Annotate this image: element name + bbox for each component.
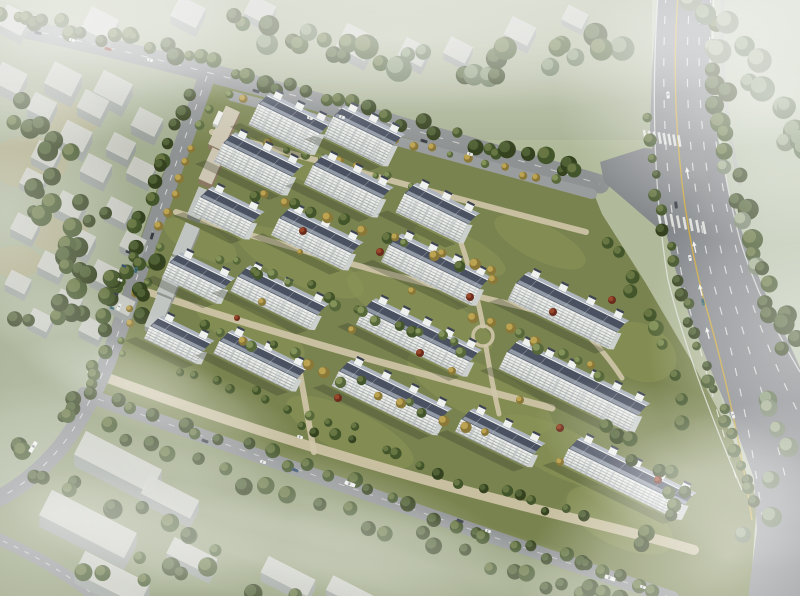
accent-tree: [376, 248, 384, 256]
accent-tree: [416, 349, 424, 357]
accent-tree: [258, 298, 266, 306]
aerial-rendering: [0, 0, 800, 596]
accent-tree: [348, 326, 356, 334]
top-haze: [0, 0, 800, 150]
accent-tree: [608, 296, 616, 304]
accent-tree: [299, 227, 307, 235]
accent-tree: [481, 428, 489, 436]
accent-tree: [516, 396, 524, 404]
accent-tree: [448, 367, 456, 375]
accent-tree: [297, 249, 303, 255]
accent-tree: [408, 287, 416, 295]
accent-tree: [334, 394, 342, 402]
accent-tree: [466, 293, 474, 301]
accent-tree: [549, 308, 557, 316]
accent-tree: [234, 315, 240, 321]
rendering-canvas: [0, 0, 800, 596]
